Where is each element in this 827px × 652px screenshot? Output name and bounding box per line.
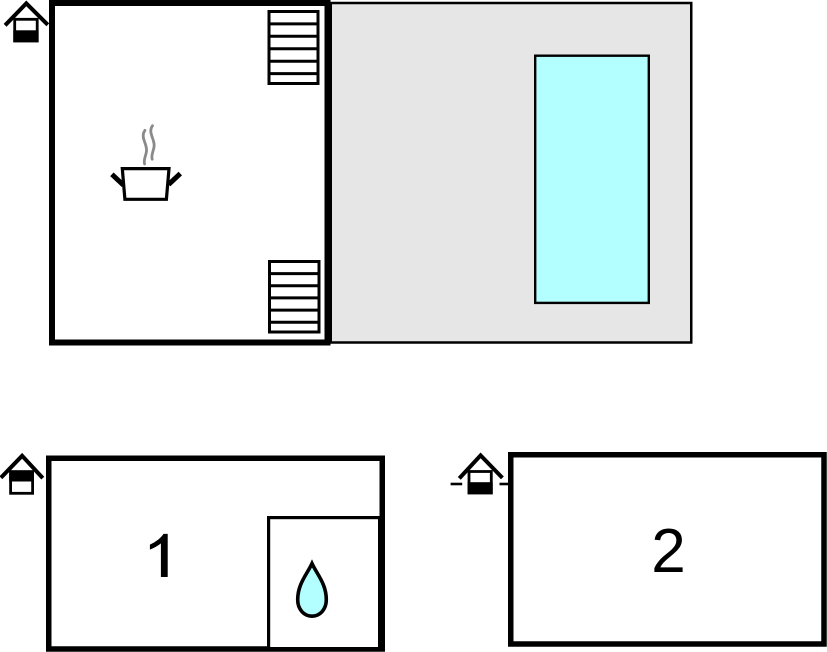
svg-text:2: 2 xyxy=(651,517,685,586)
